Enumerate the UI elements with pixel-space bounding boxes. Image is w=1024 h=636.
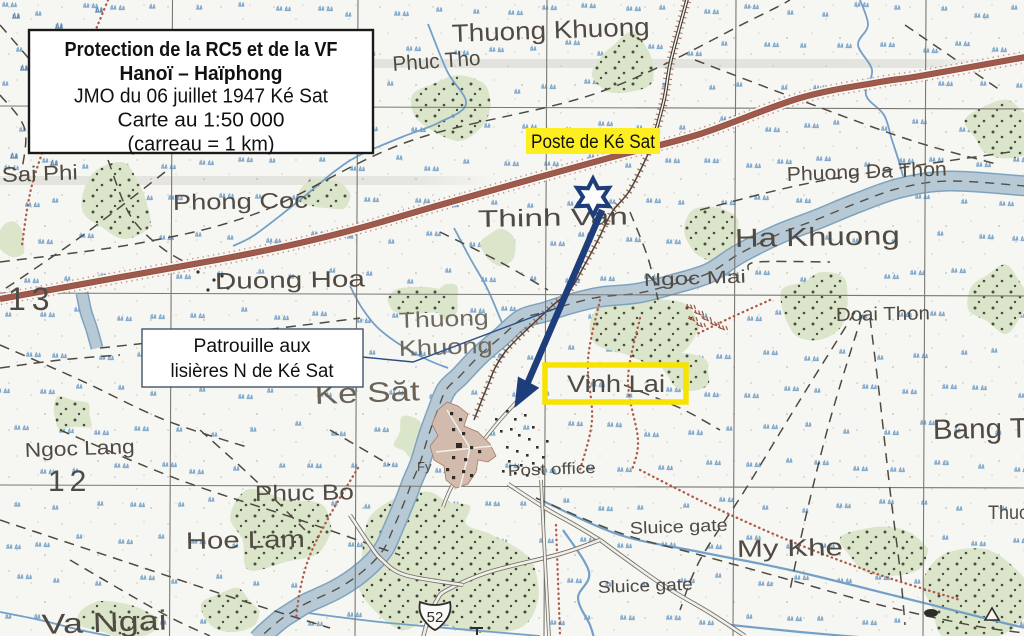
svg-text:Carte au 1:50 000: Carte au 1:50 000 (118, 110, 285, 132)
svg-text:Sai Phi: Sai Phi (1, 161, 78, 187)
svg-text:Sluice gate: Sluice gate (597, 575, 693, 597)
svg-text:12: 12 (48, 465, 91, 498)
svg-text:Bang T: Bang T (933, 412, 1024, 445)
svg-text:Va Ngai: Va Ngai (41, 605, 167, 636)
svg-text:Poste de Ké Sat: Poste de Ké Sat (531, 132, 656, 153)
svg-text:(carreau = 1 km): (carreau = 1 km) (128, 134, 275, 156)
svg-text:Hanoï – Haïphong: Hanoï – Haïphong (120, 63, 283, 85)
svg-text:Thuc: Thuc (988, 503, 1024, 524)
svg-text:Duong Hoa: Duong Hoa (215, 265, 366, 294)
svg-text:13: 13 (8, 281, 56, 317)
svg-text:Patrouille aux: Patrouille aux (194, 336, 312, 357)
svg-text:Hoe Lam: Hoe Lam (186, 526, 305, 555)
svg-text:Ngoc Mai: Ngoc Mai (643, 266, 746, 290)
svg-text:Doai Thon: Doai Thon (836, 303, 930, 326)
svg-text:Phuc Bo: Phuc Bo (255, 479, 354, 506)
svg-text:Fy: Fy (417, 459, 432, 474)
svg-text:Vinh Lai: Vinh Lai (567, 371, 665, 398)
svg-text:My Khe: My Khe (737, 534, 843, 563)
svg-text:Ha Khuong: Ha Khuong (735, 220, 900, 253)
svg-text:lisières N de Ké Sat: lisières N de Ké Sat (171, 361, 335, 382)
svg-text:Sluice gate: Sluice gate (629, 516, 728, 538)
svg-text:Post office: Post office (508, 460, 597, 480)
svg-text:Thuong: Thuong (398, 305, 489, 333)
svg-text:Phong Coc: Phong Coc (173, 188, 308, 215)
svg-text:Protection de la RC5 et de la: Protection de la RC5 et de la VF (65, 39, 338, 61)
svg-text:Ngoc Lang: Ngoc Lang (24, 436, 135, 462)
svg-text:52: 52 (427, 609, 444, 626)
svg-text:JMO du 06 juillet 1947 Ké Sat: JMO du 06 juillet 1947 Ké Sat (74, 86, 328, 108)
